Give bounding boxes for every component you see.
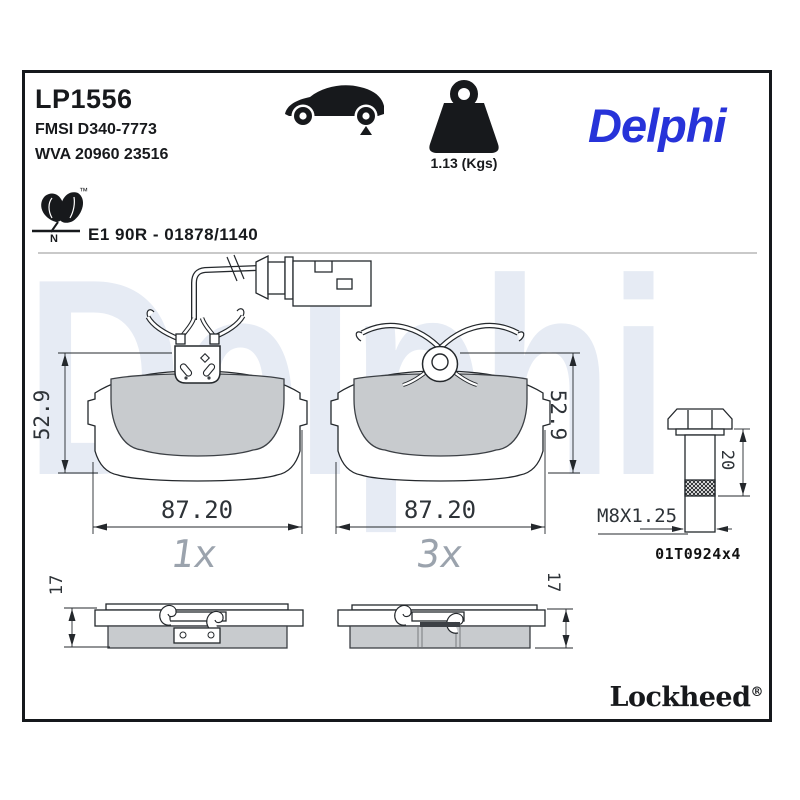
registered-mark: ® xyxy=(751,685,764,700)
bolt-knurl xyxy=(685,480,715,496)
weight-kettlebell-icon xyxy=(422,80,506,158)
pad-front-with-sensor xyxy=(58,255,371,534)
pad2-width-label: 87.20 xyxy=(390,496,490,524)
pad-side-view-left xyxy=(64,604,303,648)
pad-side-view-right xyxy=(338,605,573,648)
pad1-quantity-label: 1x xyxy=(161,532,227,576)
pad1-width-label: 87.20 xyxy=(147,496,247,524)
header-divider xyxy=(38,252,757,254)
pad2-quantity-label: 3x xyxy=(407,532,473,576)
bolt-length-label: 20 xyxy=(717,430,737,490)
bolt-thread-label: M8X1.25 xyxy=(597,505,707,527)
delphi-logo: Delphi xyxy=(588,98,726,153)
ece-approval-number: E1 90R - 01878/1140 xyxy=(88,225,258,245)
car-rear-axle-icon xyxy=(278,80,392,136)
side-right-thickness-label: 17 xyxy=(543,552,563,612)
bolt-reference-label: 01T0924x4 xyxy=(643,545,753,563)
n-letter: N xyxy=(50,233,58,244)
tm-mark: ™ xyxy=(79,186,88,196)
rear-wheel-marker-triangle xyxy=(360,126,372,135)
pad1-height-label: 52.9 xyxy=(30,385,54,445)
lockheed-text: Lockheed xyxy=(609,682,750,713)
fmsi-reference: FMSI D340-7773 xyxy=(35,121,157,139)
side-left-thickness-label: 17 xyxy=(47,555,67,615)
wva-reference: WVA 20960 23516 xyxy=(35,146,168,164)
brake-pad-datasheet: { "header": { "part_number": "LP1556", "… xyxy=(0,0,800,800)
lockheed-logo: Lockheed® xyxy=(563,682,763,713)
part-number: LP1556 xyxy=(35,84,133,115)
pad2-height-label: 52.9 xyxy=(546,385,570,445)
leaf-eco-icon: ™ N xyxy=(28,178,92,244)
